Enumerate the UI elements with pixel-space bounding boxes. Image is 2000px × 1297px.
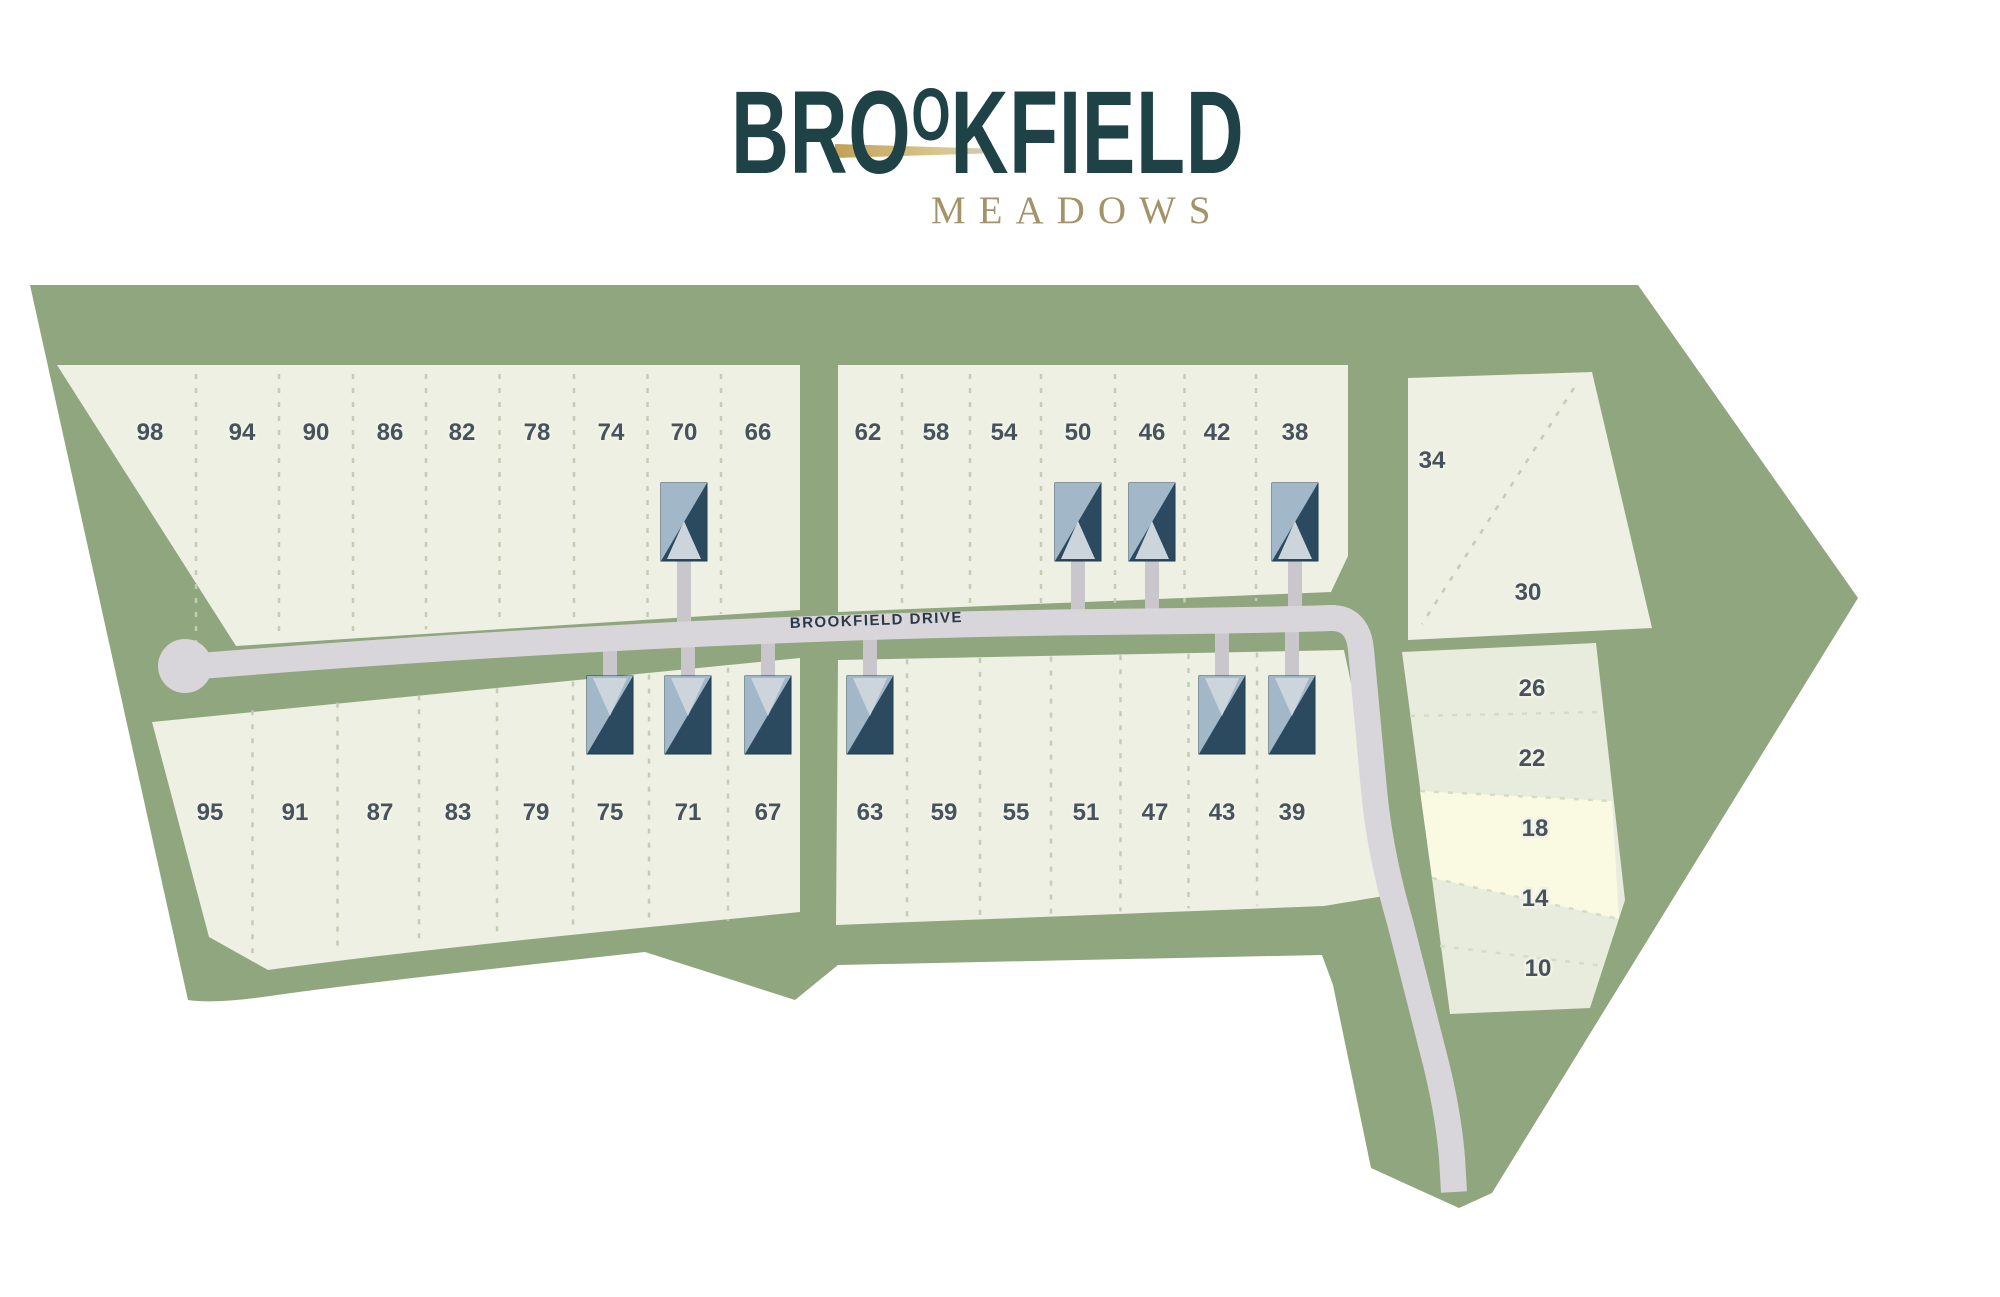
house-lot-63 <box>847 676 893 754</box>
lot-number-95: 95 <box>197 799 224 826</box>
lot-number-47: 47 <box>1142 799 1169 826</box>
logo-title-part1: BR <box>731 67 848 199</box>
lot-number-38: 38 <box>1282 419 1309 446</box>
lot-number-10: 10 <box>1525 955 1552 982</box>
lot-number-22: 22 <box>1519 745 1546 772</box>
house-lot-43 <box>1199 676 1245 754</box>
lot-number-58: 58 <box>923 419 950 446</box>
lot-number-86: 86 <box>377 419 404 446</box>
lot-number-98: 98 <box>137 419 164 446</box>
lot-number-54: 54 <box>991 419 1018 446</box>
lot-number-79: 79 <box>523 799 550 826</box>
lot-number-91: 91 <box>282 799 309 826</box>
lot-number-94: 94 <box>229 419 256 446</box>
site-plan: BROOKFIELD MEADOWS BROOKFIELD DRI <box>0 0 2000 1297</box>
lot-number-34: 34 <box>1419 447 1446 474</box>
lot-number-63: 63 <box>857 799 884 826</box>
lot-number-51: 51 <box>1073 799 1100 826</box>
lot-number-83: 83 <box>445 799 472 826</box>
house-lot-38 <box>1272 483 1318 561</box>
lot-number-14: 14 <box>1522 885 1549 912</box>
lot-number-82: 82 <box>449 419 476 446</box>
lot-number-67: 67 <box>755 799 782 826</box>
house-lot-75 <box>587 676 633 754</box>
lot-number-70: 70 <box>671 419 698 446</box>
lot-number-78: 78 <box>524 419 551 446</box>
lot-number-43: 43 <box>1209 799 1236 826</box>
lot-number-42: 42 <box>1204 419 1231 446</box>
lot-number-46: 46 <box>1139 419 1166 446</box>
lot-number-62: 62 <box>855 419 882 446</box>
house-lot-39 <box>1269 676 1315 754</box>
house-lot-46 <box>1129 483 1175 561</box>
lot-number-74: 74 <box>598 419 625 446</box>
lot-number-71: 71 <box>675 799 702 826</box>
lot-number-87: 87 <box>367 799 394 826</box>
house-lot-50 <box>1055 483 1101 561</box>
lot-number-75: 75 <box>597 799 624 826</box>
house-lot-71 <box>665 676 711 754</box>
lot-number-18: 18 <box>1522 815 1549 842</box>
lot-number-59: 59 <box>931 799 958 826</box>
lot-number-66: 66 <box>745 419 772 446</box>
lot-number-39: 39 <box>1279 799 1306 826</box>
logo-title-part2: KFIELD <box>951 67 1245 199</box>
lot-number-90: 90 <box>303 419 330 446</box>
logo-title-o2-small: O <box>911 78 950 152</box>
lot-number-50: 50 <box>1065 419 1092 446</box>
lot-number-26: 26 <box>1519 675 1546 702</box>
house-lot-67 <box>745 676 791 754</box>
logo-title-o1: O <box>848 67 911 199</box>
house-lot-70 <box>661 483 707 561</box>
lot-number-30: 30 <box>1515 579 1542 606</box>
lot-number-55: 55 <box>1003 799 1030 826</box>
